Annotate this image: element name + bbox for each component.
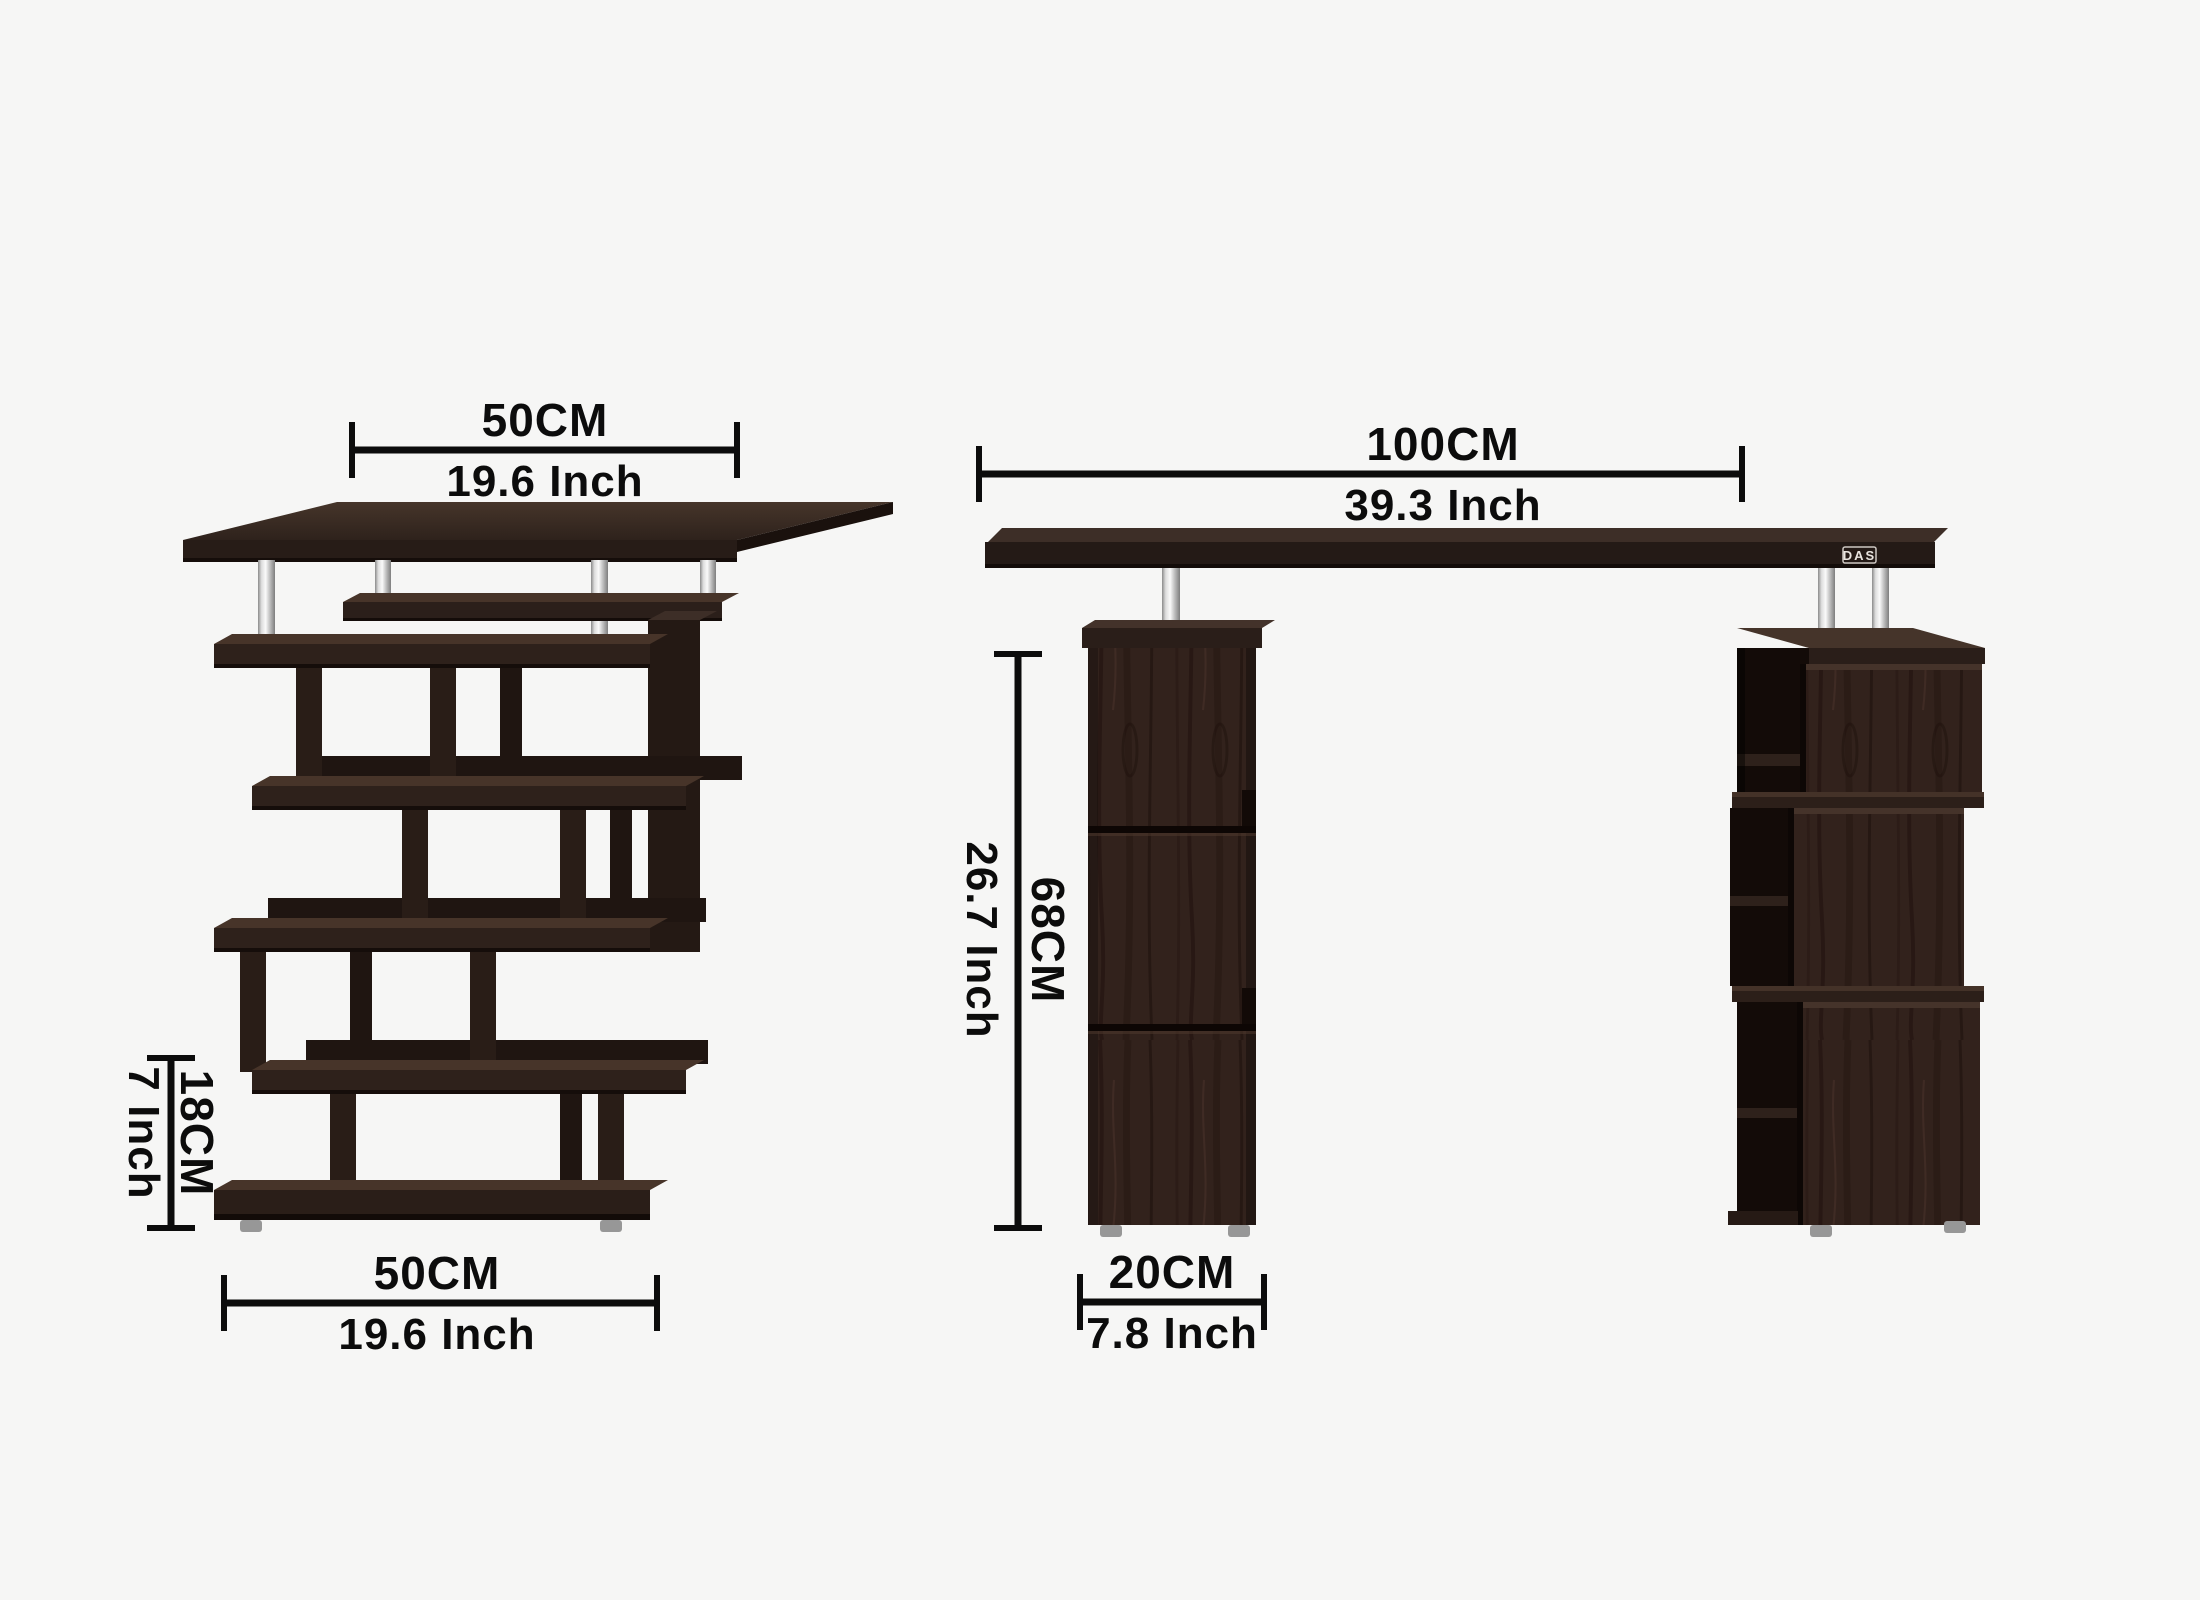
foot	[240, 1220, 262, 1232]
front-width-inch-label: 39.3 Inch	[1344, 481, 1541, 530]
front-tabletop: DAS	[985, 528, 1948, 568]
right-pedestal	[1728, 628, 1985, 1237]
das-logo-text: DAS	[1843, 548, 1876, 563]
furniture-dimension-diagram: 50CM 19.6 Inch	[0, 0, 2200, 1600]
side-shelf-height-cm-label: 18CM	[171, 1070, 223, 1197]
pedestal-width-inch-label: 7.8 Inch	[1086, 1309, 1258, 1358]
foot	[1944, 1221, 1966, 1233]
front-height-cm-label: 68CM	[1022, 877, 1074, 1004]
das-logo: DAS	[1843, 547, 1876, 563]
foot	[1810, 1225, 1832, 1237]
side-base-dimension-inch-label: 19.6 Inch	[338, 1310, 535, 1359]
side-top-dimension-cm-label: 50CM	[482, 394, 609, 446]
side-base-dimension-cm-label: 50CM	[374, 1247, 501, 1299]
foot	[1228, 1225, 1250, 1237]
side-shelf-height-inch-label: 7 Inch	[119, 1066, 168, 1199]
front-width-cm-label: 100CM	[1366, 418, 1519, 470]
pedestal-width-cm-label: 20CM	[1109, 1246, 1236, 1298]
side-top-dimension-inch-label: 19.6 Inch	[446, 457, 643, 506]
front-height-inch-label: 26.7 Inch	[957, 841, 1006, 1038]
left-pedestal	[1082, 620, 1275, 1237]
foot	[600, 1220, 622, 1232]
foot	[1100, 1225, 1122, 1237]
